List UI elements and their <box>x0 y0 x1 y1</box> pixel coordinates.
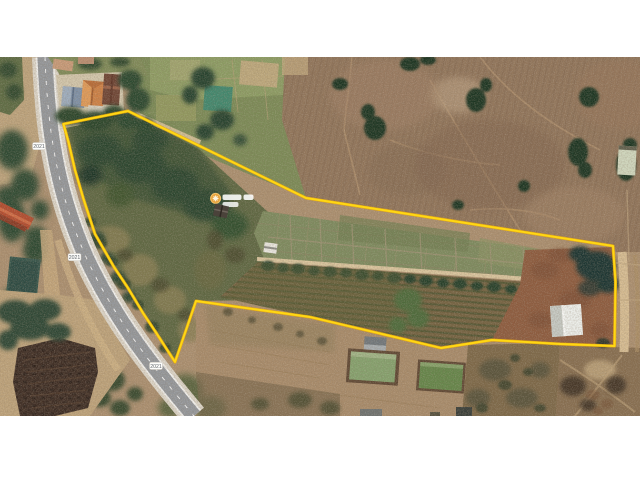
svg-text:2021: 2021 <box>150 364 162 370</box>
svg-text:2021: 2021 <box>69 255 81 261</box>
svg-text:2021: 2021 <box>33 144 45 150</box>
